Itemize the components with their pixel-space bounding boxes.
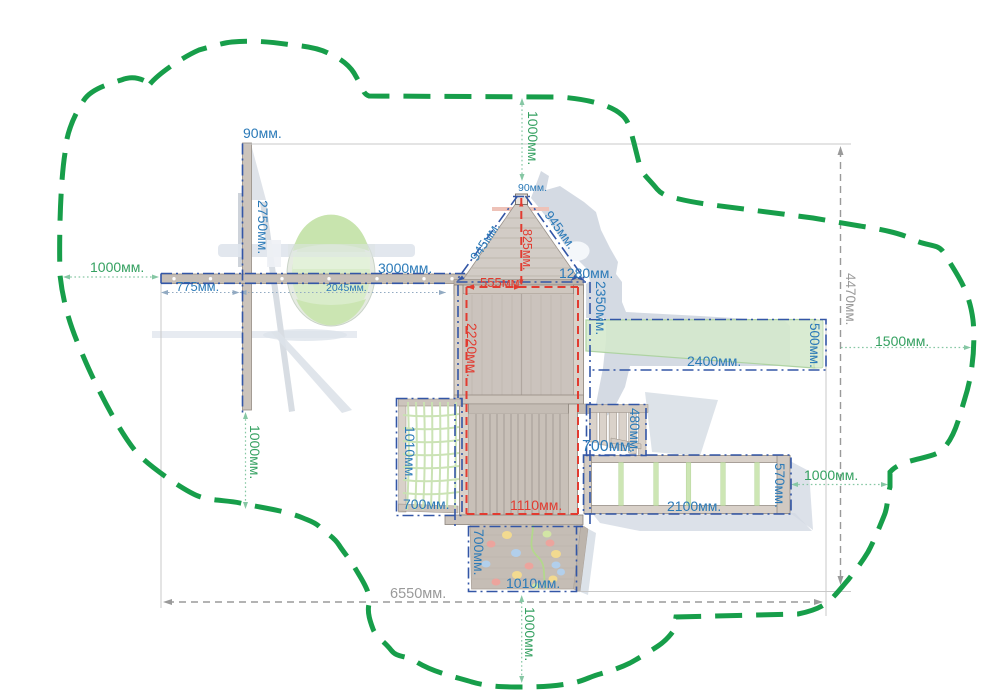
svg-text:570мм.: 570мм. <box>772 463 787 508</box>
svg-text:2220мм.: 2220мм. <box>464 323 480 377</box>
svg-text:500мм.: 500мм. <box>807 323 822 368</box>
svg-text:1500мм.: 1500мм. <box>875 333 929 349</box>
svg-text:555мм: 555мм <box>480 275 520 290</box>
svg-text:4470мм.: 4470мм. <box>843 273 858 325</box>
svg-text:1000мм.: 1000мм. <box>247 425 263 479</box>
svg-text:1280мм.: 1280мм. <box>559 265 613 281</box>
svg-text:1110мм.: 1110мм. <box>510 497 562 513</box>
svg-text:6550мм.: 6550мм. <box>390 586 446 602</box>
svg-text:700мм.: 700мм. <box>582 438 635 455</box>
svg-text:1010мм.: 1010мм. <box>402 426 418 480</box>
svg-text:700мм.: 700мм. <box>471 529 487 576</box>
svg-text:3000мм.: 3000мм. <box>378 260 432 276</box>
svg-text:2750мм.: 2750мм. <box>255 200 271 254</box>
svg-text:90мм.: 90мм. <box>243 125 282 141</box>
svg-text:2400мм.: 2400мм. <box>687 353 741 369</box>
svg-text:1000мм.: 1000мм. <box>804 467 858 483</box>
svg-text:1000мм.: 1000мм. <box>525 111 541 165</box>
svg-text:1000мм.: 1000мм. <box>90 259 144 275</box>
svg-text:2350мм.: 2350мм. <box>593 281 609 335</box>
svg-text:1010мм.: 1010мм. <box>506 575 560 591</box>
svg-text:2100мм.: 2100мм. <box>667 498 721 514</box>
svg-text:1000мм.: 1000мм. <box>522 607 538 661</box>
svg-text:700мм.: 700мм. <box>403 496 450 512</box>
svg-text:775мм.: 775мм. <box>176 279 219 294</box>
svg-text:90мм.: 90мм. <box>518 182 547 194</box>
svg-text:825мм.: 825мм. <box>520 229 534 271</box>
